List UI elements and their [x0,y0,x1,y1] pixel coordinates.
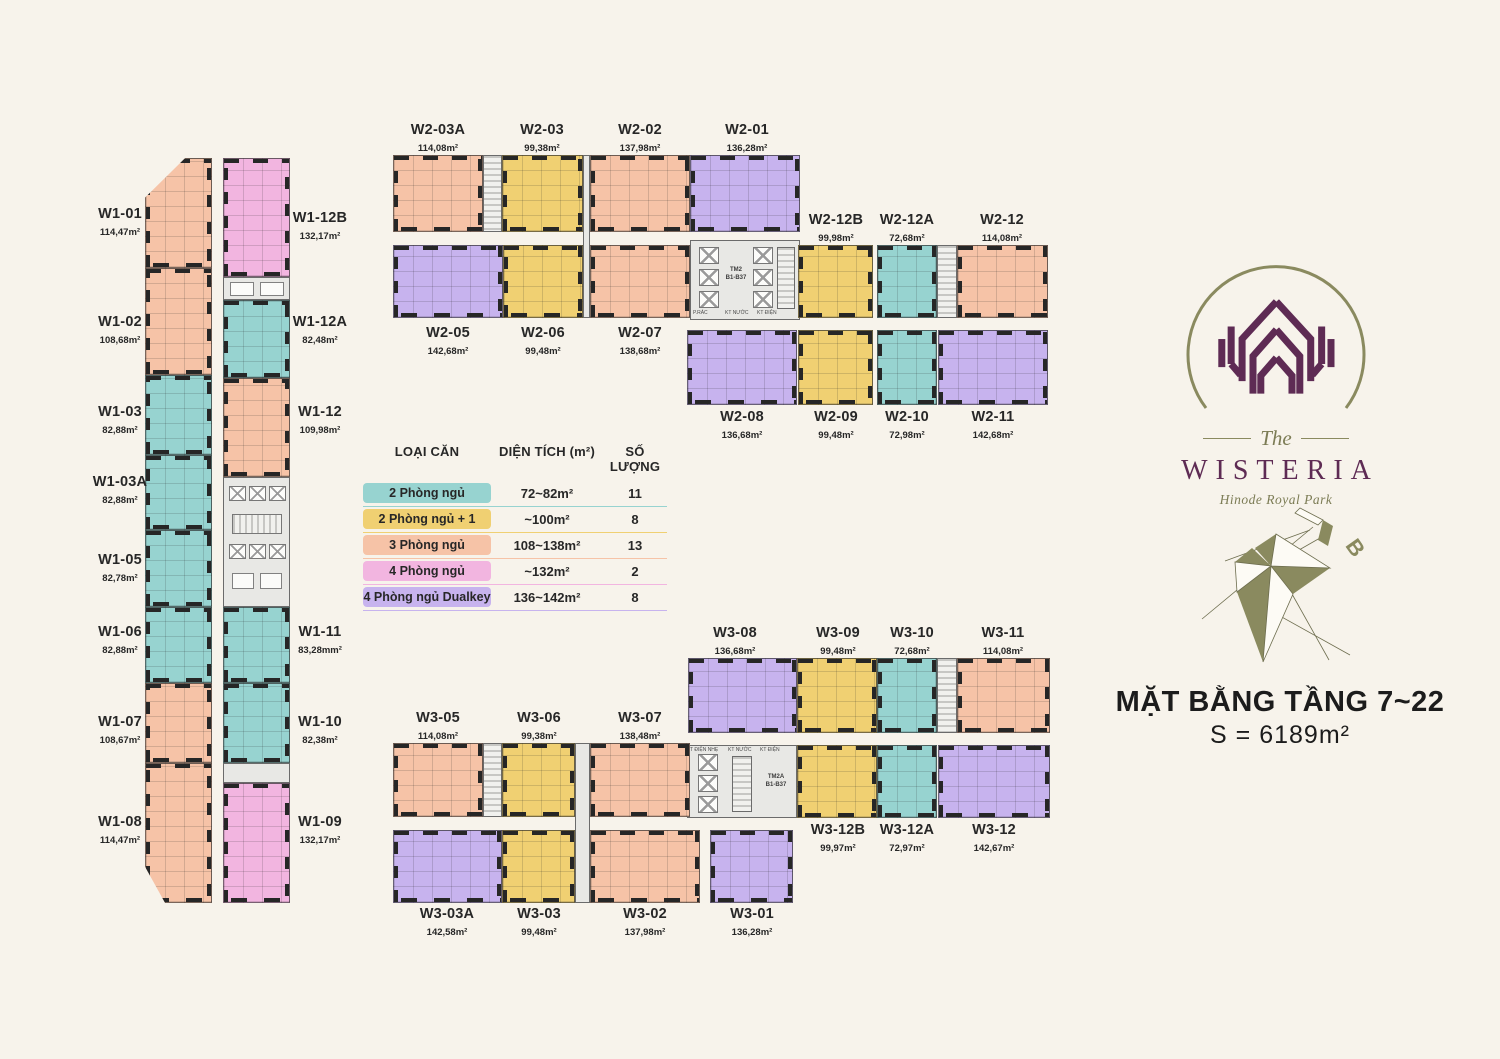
unit-label-w2-10: W2-1072,98m² [857,409,957,443]
unit-label-w1-03: W1-0382,88m² [60,404,180,438]
legend-table: LOẠI CĂN DIỆN TÍCH (m²) SỐ LƯỢNG 2 Phòng… [363,444,667,613]
core-room-label: KT ĐIỆN [757,311,777,316]
unit-label-w3-08: W3-08136,68m² [685,625,785,659]
legend-row-4pn-dualkey: 4 Phòng ngủ Dualkey 136~142m² 8 [363,587,667,613]
page-title: MẶT BẰNG TẦNG 7~22 S = 6189m² [1110,686,1450,750]
legend-row-3pn: 3 Phòng ngủ 108~138m² 13 [363,535,667,561]
unit-label-w2-06: W2-0699,48m² [493,325,593,359]
unit-w3-08[interactable] [688,658,797,733]
technical-room [260,282,284,296]
unit-w2-06[interactable] [503,245,583,318]
elevator-icon [698,775,718,792]
elevator-icon [699,247,719,264]
unit-label-w1-11: W1-1183,28mm² [260,624,380,658]
unit-w3-07[interactable] [590,743,690,817]
unit-label-w2-03a: W2-03A114,08m² [388,122,488,156]
stairs-icon [483,155,502,232]
elevator-icon [753,269,773,286]
unit-label-w1-09: W1-09132,17m² [260,814,380,848]
stairs-icon [937,658,957,733]
legend-count: 11 [603,486,667,501]
core-w1-technical [223,277,290,300]
logo-name: WISTERIA [1156,455,1396,487]
unit-label-w3-03a: W3-03A142,58m² [397,906,497,940]
unit-label-w2-08: W2-08136,68m² [692,409,792,443]
unit-w2-12b[interactable] [798,245,873,318]
unit-w3-12b[interactable] [797,745,877,818]
divider [1203,438,1251,439]
unit-label-w3-01: W3-01136,28m² [702,906,802,940]
unit-label-w3-07: W3-07138,48m² [590,710,690,744]
core-room-label: KT ĐIỆN [760,748,780,753]
technical-room [260,573,282,589]
logo-the-row: The [1156,426,1396,451]
unit-label-w3-12: W3-12142,67m² [944,822,1044,856]
unit-w2-02[interactable] [590,155,690,232]
unit-w2-01[interactable] [690,155,800,232]
elevator-icon [249,544,266,559]
core-room-label: T ĐIỆN NHẸ [690,748,718,753]
unit-w2-11[interactable] [938,330,1048,405]
stairs-icon [777,247,795,309]
elevator-icon [249,486,266,501]
unit-label-w3-12a: W3-12A72,97m² [857,822,957,856]
wisteria-logo-mark-icon [1176,256,1376,434]
elevator-icon [229,486,246,501]
elevator-icon [698,796,718,813]
legend-range: 72~82m² [491,486,603,501]
unit-w3-11[interactable] [957,658,1050,733]
unit-w2-12[interactable] [957,245,1048,318]
unit-label-w2-11: W2-11142,68m² [943,409,1043,443]
legend-swatch-2pn: 2 Phòng ngủ [363,483,491,503]
legend-row-2pn: 2 Phòng ngủ 72~82m² 11 [363,483,667,509]
elevator-icon [753,247,773,264]
unit-label-w2-02: W2-02137,98m² [590,122,690,156]
title-line2: S = 6189m² [1110,721,1450,750]
core-w2-connector [583,155,590,318]
elevator-icon [269,486,286,501]
elevator-icon [698,754,718,771]
stairs-icon [483,743,502,817]
core-w1-lobby [223,763,290,783]
legend-swatch-4pn-dualkey: 4 Phòng ngủ Dualkey [363,587,491,607]
unit-label-w1-10: W1-1082,38m² [260,714,380,748]
unit-label-w2-12: W2-12114,08m² [952,212,1052,246]
floorplan-canvas: W1-01114,47m² W1-02108,68m² W1-0382,88m²… [0,0,1500,1059]
legend-row-2pn1: 2 Phòng ngủ + 1 ~100m² 8 [363,509,667,535]
unit-label-w1-02: W1-02108,68m² [60,314,180,348]
unit-label-w1-01: W1-01114,47m² [60,206,180,240]
stairs-icon [232,514,282,534]
unit-w2-10[interactable] [877,330,937,405]
unit-label-w1-08: W1-08114,47m² [60,814,180,848]
unit-w3-03a[interactable] [393,830,502,903]
elevator-icon [269,544,286,559]
unit-w3-09[interactable] [797,658,877,733]
elevator-icon [699,269,719,286]
divider [1301,438,1349,439]
unit-label-w3-03: W3-0399,48m² [489,906,589,940]
core-room-label: KT NƯỚC [728,748,751,753]
wisteria-logo: The WISTERIA Hinode Royal Park [1156,256,1396,508]
unit-w3-06[interactable] [502,743,575,817]
core-room-label: P.RÁC [693,311,708,316]
technical-room [230,282,254,296]
unit-label-w2-07: W2-07138,68m² [590,325,690,359]
elevator-icon [229,544,246,559]
unit-label-w1-12a: W1-12A82,48m² [260,314,380,348]
title-line1: MẶT BẰNG TẦNG 7~22 [1110,686,1450,719]
core-w1-elevators [223,477,290,607]
unit-label-w1-06: W1-0682,88m² [60,624,180,658]
compass-label: B [1341,534,1371,561]
legend-range: ~100m² [491,512,603,527]
unit-label-w1-12b: W1-12B132,17m² [260,210,380,244]
unit-label-w3-11: W3-11114,08m² [953,625,1053,659]
unit-w2-03a[interactable] [393,155,483,232]
unit-label-w3-02: W3-02137,98m² [595,906,695,940]
legend-range: 108~138m² [491,538,603,553]
technical-room [232,573,254,589]
unit-label-w1-07: W1-07108,67m² [60,714,180,748]
unit-label-w3-06: W3-0699,38m² [489,710,589,744]
core-w3-elevators: TM2AB1-B37 T ĐIỆN NHẸ KT NƯỚC KT ĐIỆN [687,745,797,818]
unit-label-w1-12: W1-12109,98m² [260,404,380,438]
unit-w3-12a[interactable] [877,745,937,818]
legend-range: 136~142m² [491,590,603,605]
legend-count: 2 [603,564,667,579]
elevator-icon [699,291,719,308]
legend-header-type: LOẠI CĂN [363,444,491,474]
legend-header: LOẠI CĂN DIỆN TÍCH (m²) SỐ LƯỢNG [363,444,667,474]
unit-w2-07[interactable] [590,245,690,318]
elevator-icon [753,291,773,308]
unit-w3-03[interactable] [502,830,575,903]
unit-w3-10[interactable] [877,658,937,733]
unit-label-w2-03: W2-0399,38m² [492,122,592,156]
unit-w3-12[interactable] [938,745,1050,818]
unit-w2-12a[interactable] [877,245,937,318]
core-label-w3: TM2AB1-B37 [758,774,794,789]
unit-label-w3-05: W3-05114,08m² [388,710,488,744]
core-w3-connector [575,743,590,903]
unit-w2-09[interactable] [798,330,873,405]
stairs-icon [732,756,752,812]
legend-count: 8 [603,512,667,527]
unit-w2-08[interactable] [687,330,797,405]
unit-w3-05[interactable] [393,743,483,817]
unit-w3-01[interactable] [710,830,793,903]
unit-label-w1-03a: W1-03A82,88m² [60,474,180,508]
unit-label-w2-01: W2-01136,28m² [697,122,797,156]
core-room-label: KT NƯỚC [725,311,748,316]
unit-w2-03[interactable] [502,155,583,232]
core-label-w2: TM2B1-B37 [721,267,751,282]
legend-swatch-2pn1: 2 Phòng ngủ + 1 [363,509,491,529]
core-w2-elevators: TM2B1-B37 P.RÁC KT NƯỚC KT ĐIỆN [690,240,800,320]
legend-row-4pn: 4 Phòng ngủ ~132m² 2 [363,561,667,587]
legend-header-count: SỐ LƯỢNG [603,444,667,474]
unit-label-w2-05: W2-05142,68m² [398,325,498,359]
unit-label-w3-10: W3-1072,68m² [862,625,962,659]
unit-label-w1-05: W1-0582,78m² [60,552,180,586]
unit-w2-05[interactable] [393,245,503,318]
legend-count: 8 [603,590,667,605]
compass-north-icon: B [1192,498,1382,683]
logo-the: The [1260,426,1292,451]
legend-count: 13 [603,538,667,553]
legend-range: ~132m² [491,564,603,579]
unit-label-w2-12a: W2-12A72,68m² [857,212,957,246]
unit-w3-02[interactable] [590,830,700,903]
stairs-icon [937,245,957,318]
legend-swatch-4pn: 4 Phòng ngủ [363,561,491,581]
legend-header-area: DIỆN TÍCH (m²) [491,444,603,474]
legend-swatch-3pn: 3 Phòng ngủ [363,535,491,555]
